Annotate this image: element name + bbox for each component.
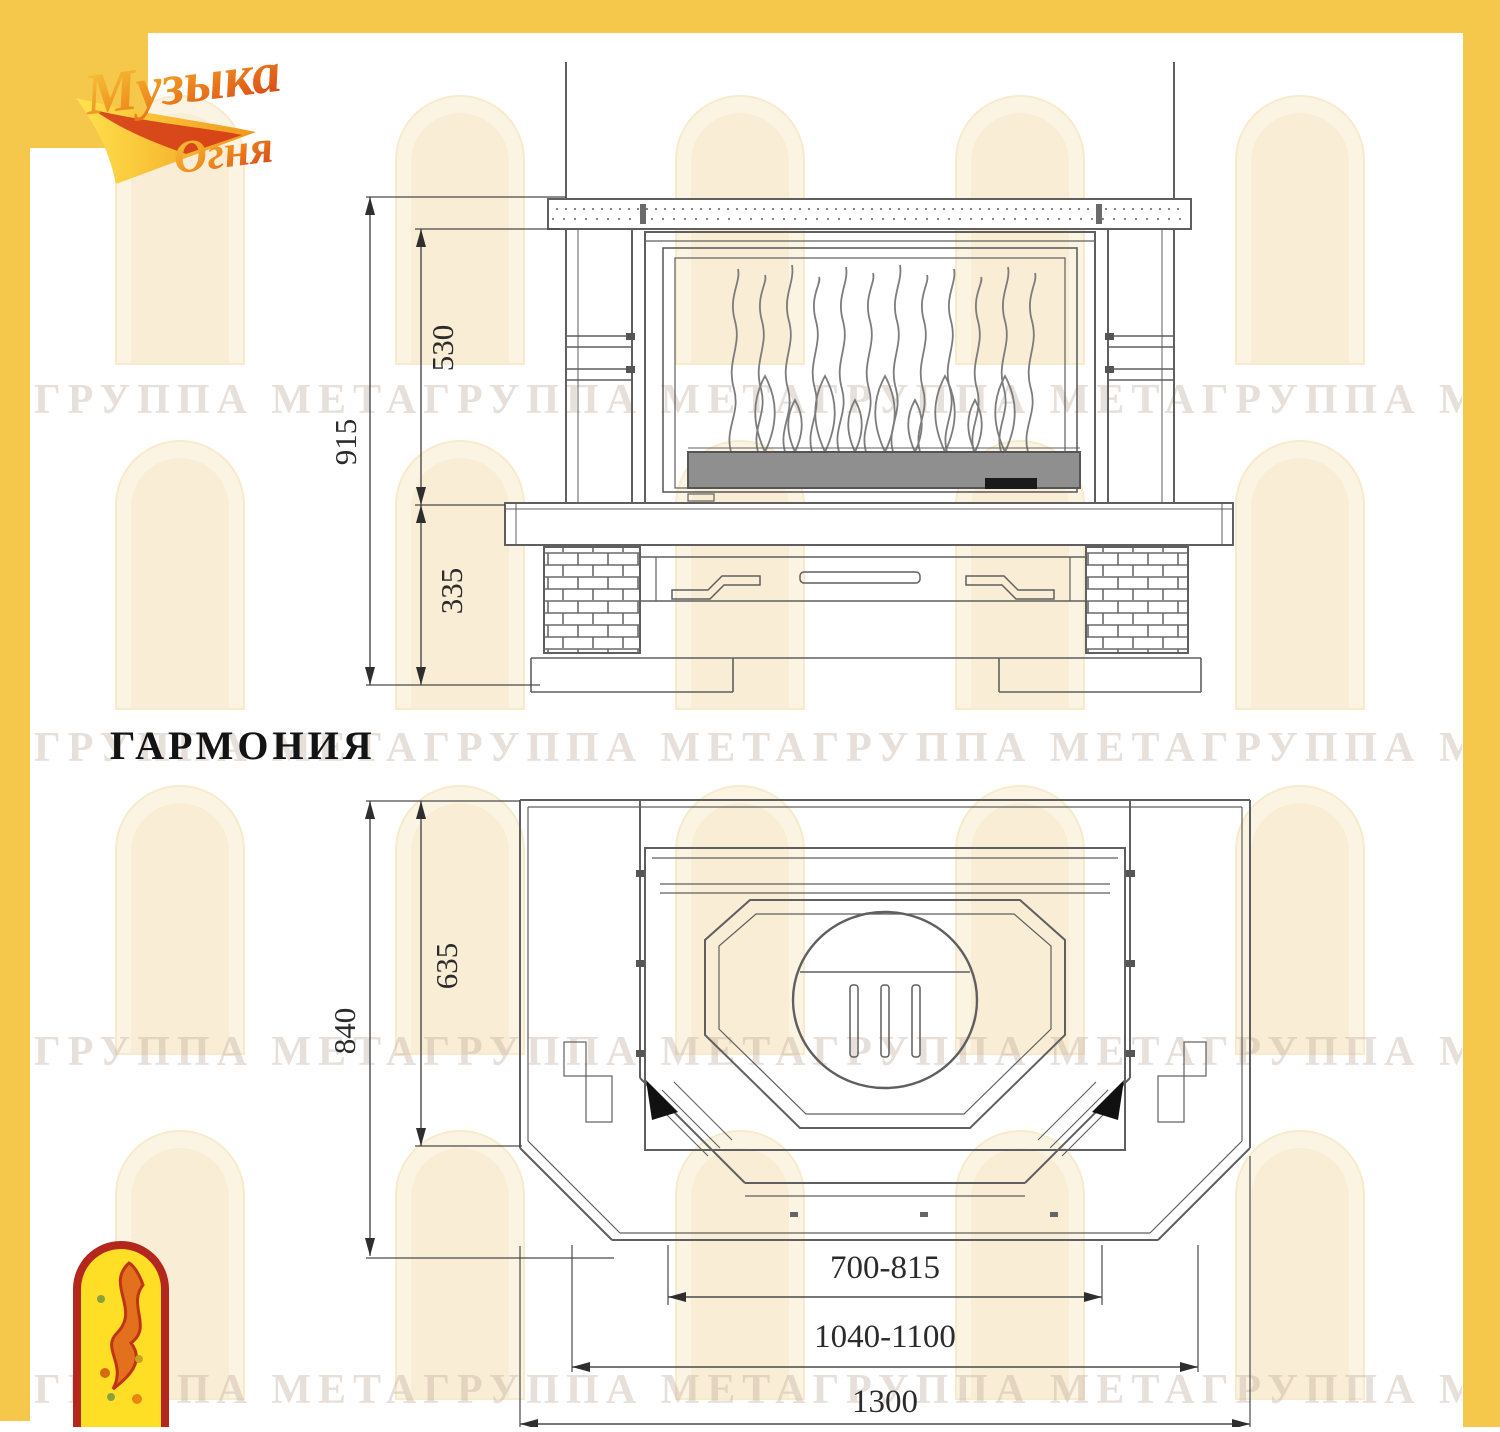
flame-dancer-emblem (73, 1241, 169, 1427)
dim-label-plan-total-width: 1300 (810, 1384, 960, 1420)
dim-label-plan-portal-width: 1040-1100 (760, 1319, 1010, 1355)
logo-text-line2: Огня (171, 120, 276, 183)
fireplace-technical-drawing (0, 0, 1500, 1427)
dim-label-plan-firebox-width: 700-815 (785, 1250, 985, 1286)
dim-label-plan-total-depth: 840 (329, 986, 361, 1076)
dim-label-front-base-height: 335 (436, 546, 468, 636)
dim-label-plan-body-depth: 635 (431, 921, 463, 1011)
dim-label-front-total-height: 915 (330, 397, 362, 487)
model-title: ГАРМОНИЯ (110, 722, 376, 769)
page: { "page": { "frame_color": "#F5C74B", "b… (0, 0, 1500, 1427)
flame-ornament (729, 265, 1035, 455)
front-view-linework (505, 62, 1233, 692)
logo-text-line1: Музыка (80, 39, 284, 128)
dim-label-front-firebox-height: 530 (427, 303, 459, 393)
flame-dancer-figure (81, 1249, 161, 1427)
brand-logo: Музыка Огня (28, 16, 338, 186)
plan-view-linework (520, 800, 1250, 1240)
